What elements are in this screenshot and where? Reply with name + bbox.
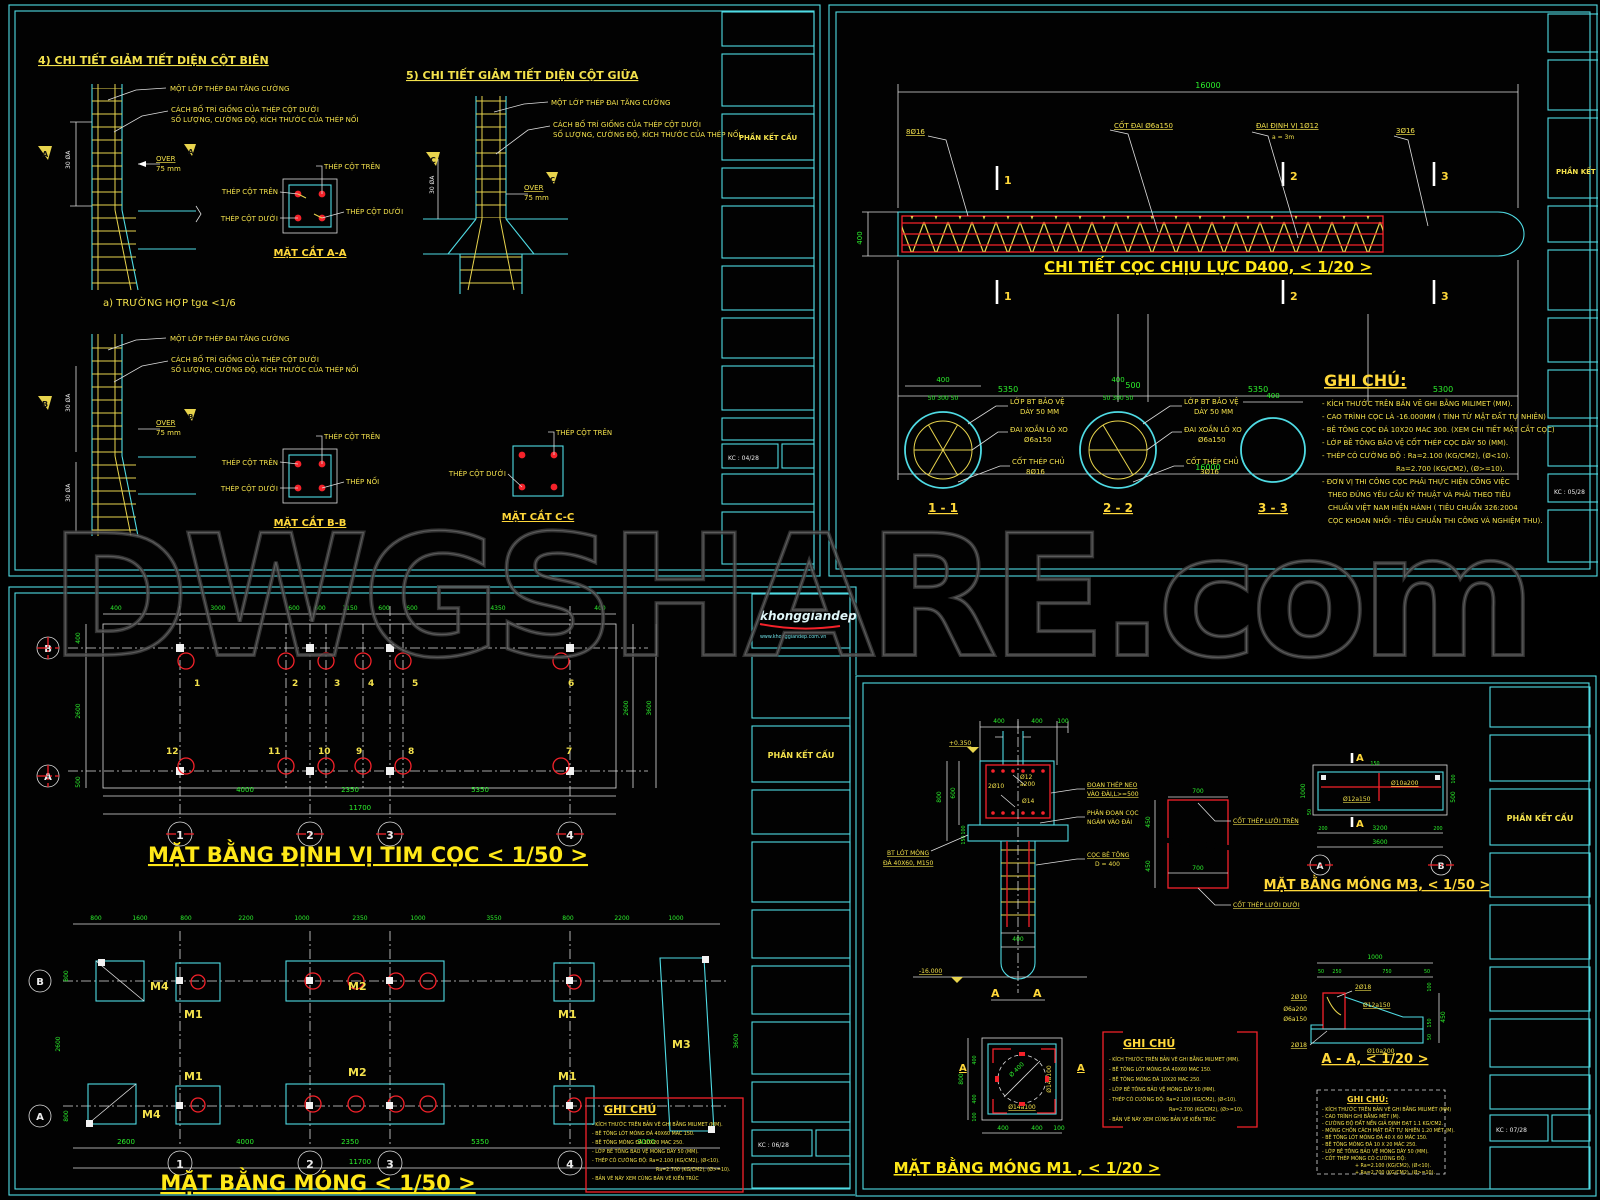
m3-1000: 1000 <box>1300 783 1307 798</box>
m3-axisA: A <box>1317 862 1324 872</box>
pile-no: 7 <box>566 747 572 757</box>
aa-2d10: 2Ø10 <box>1291 994 1307 1001</box>
p2-dimtop: 1000 <box>668 915 683 922</box>
m1s-markA-right: A <box>1033 987 1042 1000</box>
m3-d12a150: Ø12a150 <box>1343 796 1371 803</box>
sheet3-drawing: 400 3000 600 600 1150 600 600 4350 400 <box>8 586 858 1197</box>
p1-dimtop: 600 <box>406 605 418 612</box>
note-line: CỌC KHOAN NHỒI - TIÊU CHUẨN THI CÔNG VÀ … <box>1328 515 1542 525</box>
dim-5350a: 5350 <box>998 385 1018 394</box>
mark3-top: 3 <box>1441 170 1449 183</box>
pile-no: 9 <box>356 747 362 757</box>
aa-2d18b: 2Ø18 <box>1291 1042 1307 1049</box>
p1-dimtop: 3000 <box>210 605 225 612</box>
note-line: - ĐƠN VỊ THI CÔNG CỌC PHẢI THỰC HIỆN CÔN… <box>1322 477 1510 486</box>
p2-dimside-r: 3600 <box>733 1033 740 1048</box>
detail4-column: 30 ØA A OVER 75 mm A MỘT LỚP THÉP ĐAI TĂ… <box>38 84 358 290</box>
level-bottom: -16.000 <box>919 968 942 975</box>
sheet3-number: KC : 06/28 <box>758 1142 789 1149</box>
m1p-diml: 100 <box>972 1112 978 1121</box>
note-line: - KÍCH THƯỚC TRÊN BẢN VẼ GHI BẰNG MILIMÉ… <box>1322 1105 1451 1113</box>
footing-M2b: M2 <box>348 1066 367 1079</box>
over-label-c: OVER <box>524 184 544 192</box>
m1p-markA-l: A <box>959 1063 967 1074</box>
s22-dimsub: 50 300 50 <box>1103 395 1134 402</box>
sheet4-notes2: GHI CHÚ: - KÍCH THƯỚC TRÊN BẢN VẼ GHI BẰ… <box>1317 1090 1455 1176</box>
axis2-3: 3 <box>386 1158 394 1171</box>
aa-2d18t: 2Ø18 <box>1355 984 1371 991</box>
dim-30da-b2: 30 ØA <box>65 483 72 502</box>
label-thep-cot-tren: THÉP CỘT TRÊN <box>323 162 380 171</box>
label-mot-lop-b: MỘT LỚP THÉP ĐAI TĂNG CƯỜNG <box>170 334 289 343</box>
pile-no: 10 <box>318 747 331 757</box>
label-bb-noi: THÉP NỐI <box>345 476 379 486</box>
note-line: - BÊ TÔNG MÓNG ĐÁ 10X20 MAC 250. <box>1109 1075 1201 1083</box>
label-cach-bo-tri-b: CÁCH BỐ TRÍ GIỐNG CỦA THÉP CỘT DƯỚI <box>171 354 319 364</box>
note-line: + Ra=2.700 (KG/CM2), (Ø>=10). <box>1355 1169 1435 1176</box>
sheet1-number: KC : 04/28 <box>728 455 759 462</box>
m1p-800: 800 <box>958 1073 965 1085</box>
m3-100: 100 <box>1451 774 1457 783</box>
detail4-title: 4) CHI TIẾT GIẢM TIẾT DIỆN CỘT BIÊN <box>38 52 269 67</box>
s22-ct1: CỐT THÉP CHỦ <box>1186 456 1239 466</box>
over-label-b: OVER <box>156 419 176 427</box>
m3-axisB: B <box>1438 862 1445 872</box>
aa-dimr: 100 <box>1427 982 1433 991</box>
sheet4-notes1-heading: GHI CHÚ <box>1123 1037 1175 1050</box>
label-mot-lop: MỘT LỚP THÉP ĐAI TĂNG CƯỜNG <box>170 84 289 93</box>
dim-5350b: 5350 <box>1248 385 1268 394</box>
p2-dimtop: 3550 <box>486 915 501 922</box>
note-line: - THÉP CÓ CƯỜNG ĐỘ: Ra=2.100 (KG/CM2), (… <box>592 1156 720 1164</box>
axis-3: 3 <box>386 829 394 842</box>
section-marker-b2: B <box>188 413 193 421</box>
cad-canvas: 4) CHI TIẾT GIẢM TIẾT DIỆN CỘT BIÊN 30 Ø… <box>0 0 1600 1200</box>
pile-no: 5 <box>412 679 418 689</box>
label-8d16: 8Ø16 <box>906 128 925 136</box>
pile-positioning-plan: 400 3000 600 600 1150 600 600 4350 400 <box>37 605 656 867</box>
s11-dimsub: 50 300 50 <box>928 395 959 402</box>
label-cach-bo-tri: CÁCH BỐ TRÍ GIỐNG CỦA THÉP CỘT DƯỚI <box>171 104 319 114</box>
m1p-title: MẶT BẰNG MÓNG M1 , < 1/20 > <box>894 1156 1161 1177</box>
p1-dimleft: 500 <box>75 776 82 788</box>
pile-no: 3 <box>334 679 340 689</box>
s33-dim400: 400 <box>1266 392 1279 400</box>
note-line: - CỐT THÉP MÓNG CÓ CƯỜNG ĐỘ: <box>1322 1154 1406 1162</box>
pile-no: 8 <box>408 747 414 757</box>
label-mot-lop-5: MỘT LỚP THÉP ĐAI TĂNG CƯỜNG <box>551 98 670 107</box>
p1-dimtop: 600 <box>288 605 300 612</box>
l-a200: a200 <box>1020 781 1035 788</box>
sheet-foundation-plans: 400 3000 600 600 1150 600 600 4350 400 <box>8 586 858 1197</box>
mark1-top: 1 <box>1004 174 1012 187</box>
sheet2-notes: GHI CHÚ: - KÍCH THƯỚC TRÊN BẢN VẼ GHI BẰ… <box>1322 371 1555 525</box>
aa-dimr: 150 <box>1427 1018 1433 1027</box>
aa-sub: 750 <box>1382 969 1391 975</box>
dim-100: 100 <box>961 825 967 834</box>
sheet4-title-block: PHẦN KẾT CẤU KC : 07/28 <box>1490 687 1590 1189</box>
note-line: - LỚP BÊ TÔNG BẢO VỆ MÓNG DÀY 50 (MM). <box>1322 1147 1429 1155</box>
p2-dimbot: 2600 <box>117 1138 135 1146</box>
sheet2-drawing: 16000 400 1 1 2 2 3 3 8Ø16 CỐT ĐAI Ø6a15… <box>828 4 1598 578</box>
m3-markA-top: A <box>1356 753 1364 764</box>
m1s-dim: 100 <box>1057 718 1069 725</box>
s11-name: 1 - 1 <box>928 501 958 515</box>
label-a3m: a = 3m <box>1272 134 1294 141</box>
sheet3-discipline: PHẦN KẾT CẤU <box>768 748 835 760</box>
note-line: Ra=2.700 (KG/CM2), (Ø>=10). <box>656 1166 730 1173</box>
label-so-luong-5: SỐ LƯỢNG, CƯỜNG ĐỘ, KÍCH THƯỚC CỦA THÉP … <box>553 129 740 139</box>
pile-no: 2 <box>292 679 298 689</box>
p1-dimtop: 1150 <box>342 605 357 612</box>
label-3d16: 3Ø16 <box>1396 127 1415 135</box>
plan2-title: MẶT BẰNG MÓNG < 1/50 > <box>160 1167 475 1195</box>
label-thep-cot-tren2: THÉP CỘT TRÊN <box>221 187 278 196</box>
l-2d10: 2Ø10 <box>988 783 1004 790</box>
p2-dimtop: 800 <box>90 915 102 922</box>
dim-5300: 5300 <box>1433 385 1453 394</box>
s22-name: 2 - 2 <box>1103 501 1133 515</box>
note-line: - CƯỜNG ĐỘ ĐẤT NỀN GIẢ ĐỊNH ĐẠT 1.1 KG/C… <box>1322 1119 1443 1127</box>
s22-dx2: Ø6a150 <box>1198 436 1226 444</box>
m3-50: 50 <box>1307 809 1313 815</box>
m1p-diml: 400 <box>972 1055 978 1064</box>
p2-dimbot: 4000 <box>236 1138 254 1146</box>
gd-label-top: CỐT THÉP LƯỚI TRÊN <box>1233 817 1299 825</box>
sheet-column-details: 4) CHI TIẾT GIẢM TIẾT DIỆN CỘT BIÊN 30 Ø… <box>8 4 822 578</box>
pile-section-3: 400 3 - 3 <box>1241 392 1305 515</box>
label-cc-tren: THÉP CỘT TRÊN <box>555 428 612 437</box>
aa-section: 1000 50 250 750 50 2Ø18 2Ø10 Ø6a200 Ø6a1… <box>1283 954 1447 1067</box>
axis2-2: 2 <box>306 1158 314 1171</box>
m1p-dimb: 400 <box>1031 1125 1043 1132</box>
over-mm-b: 75 mm <box>156 429 181 437</box>
m3-title: MẶT BẰNG MÓNG M3, < 1/50 > <box>1264 876 1491 893</box>
sheet4-drawing: 400 400 100 +0.350 Ø12 a200 2Ø10 Ø14 400 <box>855 675 1597 1197</box>
m1p-markA-r: A <box>1077 1063 1085 1074</box>
sheet2-number: KC : 05/28 <box>1554 489 1585 496</box>
p1-dimtop: 4350 <box>490 605 505 612</box>
pile-no: 1 <box>194 679 200 689</box>
note-line: - BÊ TÔNG CỌC ĐÁ 10X20 MAC 300. (XEM CHI… <box>1322 424 1555 434</box>
p2-dimtop: 800 <box>180 915 192 922</box>
p1-dimtop: 600 <box>378 605 390 612</box>
p2-dimtop: 1000 <box>410 915 425 922</box>
l-phan2: NGÀM VÀO ĐÀI <box>1087 819 1132 826</box>
level-top: +0.350 <box>949 740 971 747</box>
note-line: - LỚP BÊ TÔNG BẢO VỆ MÓNG DÀY 50 (MM). <box>1109 1085 1216 1093</box>
gd-700top: 700 <box>1192 788 1204 795</box>
note-line: - CAO TRÌNH CỌC LÀ -16.000MM ( TÍNH TỪ M… <box>1322 411 1546 421</box>
l-phan1: PHÂN ĐOẠN CỌC <box>1087 810 1139 817</box>
l-coc1: CỌC BÊ TÔNG <box>1087 851 1130 859</box>
axis-1: 1 <box>176 829 184 842</box>
mark2-top: 2 <box>1290 170 1298 183</box>
footing-M4: M4 <box>150 980 169 993</box>
label-thep-cot-duoi: THÉP CỘT DƯỚI <box>220 214 278 223</box>
section-marker-c2: C <box>550 176 555 184</box>
l-d12: Ø12 <box>1020 774 1033 781</box>
footing-M3: M3 <box>672 1038 691 1051</box>
dim-500: 500 <box>1125 381 1140 390</box>
l-neo2: VÀO ĐÀI,L>=500 <box>1087 791 1139 798</box>
p2-dimside: 800 <box>63 1110 70 1122</box>
note-line: - MÓNG CHÔN CÁCH MẶT ĐẤT TỰ NHIÊN 1.20 M… <box>1322 1126 1455 1134</box>
footing-M1: M1 <box>184 1008 203 1021</box>
axis2-1: 1 <box>176 1158 184 1171</box>
m1p-diml: 400 <box>972 1094 978 1103</box>
label-so-luong-b: SỐ LƯỢNG, CƯỜNG ĐỘ, KÍCH THƯỚC CỦA THÉP … <box>171 364 358 374</box>
m3-500: 500 <box>1450 791 1457 803</box>
sheet4-notes1: GHI CHÚ - KÍCH THƯỚC TRÊN BẢN VẼ GHI BẰN… <box>1103 1032 1257 1127</box>
s11-ct1: CỐT THÉP CHỦ <box>1012 456 1065 466</box>
sheet2-notes-heading: GHI CHÚ: <box>1324 371 1407 390</box>
pile-no: 4 <box>368 679 374 689</box>
axis2-B: B <box>36 977 44 988</box>
s11-bv1: LỚP BT BẢO VỆ <box>1010 397 1065 406</box>
label-so-luong: SỐ LƯỢNG, CƯỜNG ĐỘ, KÍCH THƯỚC CỦA THÉP … <box>171 114 358 124</box>
note-line: - THÉP CÓ CƯỜNG ĐỘ: Ra=2.100 (KG/CM2), (… <box>1109 1095 1237 1103</box>
dim-800: 800 <box>936 791 943 803</box>
footing-M1d: M1 <box>558 1070 577 1083</box>
l-neo1: ĐOẠN THÉP NEO <box>1087 781 1138 789</box>
note-line: + Ra=2.100 (KG/CM2), (Ø<10). <box>1355 1162 1431 1169</box>
note-line: - CAO TRÌNH GHI BẰNG MÉT (M). <box>1322 1112 1400 1120</box>
aa-d6a150: Ø6a150 <box>1283 1016 1307 1023</box>
sheet1-discipline: PHẦN KẾT CẤU <box>739 132 798 142</box>
aa-d12a150: Ø12a150 <box>1363 1002 1391 1009</box>
sheet3-notes-heading: GHI CHÚ <box>604 1103 656 1116</box>
dim-400-left: 400 <box>856 231 864 244</box>
s22-dx1: ĐAI XOẮN LÒ XO <box>1184 424 1242 434</box>
sheet-pile-detail: 16000 400 1 1 2 2 3 3 8Ø16 CỐT ĐAI Ø6a15… <box>828 4 1598 578</box>
s22-ct2: 3Ø16 <box>1200 468 1219 476</box>
sheet4-discipline: PHẦN KẾT CẤU <box>1507 811 1574 823</box>
over-label: OVER <box>156 155 176 163</box>
note-line: - KÍCH THƯỚC TRÊN BẢN VẼ GHI BẰNG MILIME… <box>592 1120 723 1128</box>
axis2-A: A <box>36 1112 44 1123</box>
section-marker-a: A <box>42 150 49 159</box>
note-line: Ra=2.700 (KG/CM2), (Ø>=10). <box>1396 465 1505 473</box>
section-aa: THÉP CỘT TRÊN THÉP CỘT TRÊN THÉP CỘT DƯỚ… <box>220 162 403 259</box>
p1-dimbot: 4000 <box>236 786 254 794</box>
m1s-markA-left: A <box>991 987 1000 1000</box>
note-line: Ra=2.700 (KG/CM2), (Ø>=10). <box>1169 1106 1243 1113</box>
p2-dimtop: 2350 <box>352 915 367 922</box>
section-bb: THÉP CỘT TRÊN THÉP CỘT TRÊN THÉP CỘT DƯỚ… <box>220 432 380 529</box>
sheet1-drawing: 4) CHI TIẾT GIẢM TIẾT DIỆN CỘT BIÊN 30 Ø… <box>8 4 822 578</box>
m3-150: 150 <box>1370 761 1379 767</box>
m1p-d400: Ø 400 <box>1008 1061 1026 1079</box>
note-line: - BÊ TÔNG LÓT MÓNG ĐÁ 40X60 MAC 150. <box>1109 1065 1211 1073</box>
m3-dimb: 3200 <box>1372 825 1387 832</box>
gd-label-bottom: CỐT THÉP LƯỚI DƯỚI <box>1233 901 1300 909</box>
s11-dx2: Ø6a150 <box>1024 436 1052 444</box>
note-line: - BẢN VẼ NÀY XEM CÙNG BẢN VẼ KIẾN TRÚC <box>1109 1115 1216 1123</box>
aa-dimr: 50 <box>1427 1034 1433 1040</box>
note-line: - BÊ TÔNG LÓT MÓNG ĐÁ 40X60 MAC 150. <box>592 1129 694 1137</box>
m1p-dimb: 100 <box>1053 1125 1065 1132</box>
note-line: - LỚP BÊ TÔNG BẢO VỆ CỐT THÉP CỌC DÀY 50… <box>1322 437 1508 447</box>
pile-section-2: 400 50 300 50 LỚP BT BẢO VỆ DÀY 50 MM ĐA… <box>1080 376 1242 515</box>
label-cot-dai: CỐT ĐAI Ø6a150 <box>1114 120 1173 130</box>
note-line: - KÍCH THƯỚC TRÊN BẢN VẼ GHI BẰNG MILIME… <box>1109 1055 1240 1063</box>
gd-450b: 450 <box>1145 860 1152 872</box>
pile-no: 6 <box>568 679 574 689</box>
label-bb-duoi: THÉP CỘT DƯỚI <box>220 484 278 493</box>
s22-bv1: LỚP BT BẢO VỆ <box>1184 397 1239 406</box>
note-line: - BÊ TÔNG MÓNG ĐÁ 10 X 20 MÁC 250. <box>1322 1140 1417 1148</box>
dim-16000-top: 16000 <box>1195 81 1220 90</box>
detailB-column: 30 ØA 30 ØA B OVER 75 mm B MỘT LỚP THÉP … <box>38 334 358 536</box>
aa-sub: 250 <box>1332 969 1341 975</box>
l-lot1: BT LÓT MÓNG <box>887 850 930 857</box>
s11-dim400: 400 <box>936 376 949 384</box>
p2-dimbot: 2350 <box>341 1138 359 1146</box>
footing-M1b: M1 <box>184 1070 203 1083</box>
sheet4-number: KC : 07/28 <box>1496 1127 1527 1134</box>
p1-dimtop: 400 <box>594 605 606 612</box>
dim-pile-400: 400 <box>1012 936 1024 943</box>
sheet1-title-block: PHẦN KẾT CẤU KC : 04/28 <box>722 12 814 564</box>
footing-M2: M2 <box>348 980 367 993</box>
sheet3-notes: GHI CHÚ - KÍCH THƯỚC TRÊN BẢN VẼ GHI BẰN… <box>586 1098 743 1192</box>
mark2-bot: 2 <box>1290 290 1298 303</box>
p2-dimtop: 2200 <box>614 915 629 922</box>
p1-dimtop: 600 <box>314 605 326 612</box>
sheet4-notes2-heading: GHI CHÚ: <box>1347 1093 1388 1104</box>
dim-30da: 30 ØA <box>65 150 72 169</box>
footing-M4b: M4 <box>142 1108 161 1121</box>
caption-bb: MẶT CẮT B-B <box>274 514 347 529</box>
logo-url: www.khonggiandep.com.vn <box>760 634 826 640</box>
p1-dimtop: 400 <box>110 605 122 612</box>
gd-700mid: 700 <box>1192 865 1204 872</box>
axis-2: 2 <box>306 829 314 842</box>
p1-dimleft: 400 <box>75 632 82 644</box>
logo-swoosh <box>760 624 840 629</box>
axis-4: 4 <box>566 829 574 842</box>
logo-text: khonggiandep <box>760 609 857 623</box>
aa-sub: 50 <box>1424 969 1430 975</box>
aa-title: A - A, < 1/20 > <box>1322 1052 1429 1067</box>
p1-dimright: 2600 <box>623 700 630 715</box>
p1-dimbot: 5350 <box>471 786 489 794</box>
mark3-bot: 3 <box>1441 290 1449 303</box>
l-lot2: ĐÁ 40X60, M150 <box>883 860 934 867</box>
s22-dim400: 400 <box>1111 376 1124 384</box>
note-line: CHUẨN VIỆT NAM HIỆN HÀNH ( TIÊU CHUẨN 32… <box>1328 502 1518 512</box>
note-line: - KÍCH THƯỚC TRÊN BẢN VẼ GHI BẰNG MILIME… <box>1322 398 1513 408</box>
caption-cc: MẶT CẮT C-C <box>502 508 574 523</box>
over-mm: 75 mm <box>156 165 181 173</box>
m3-3600: 3600 <box>1372 839 1387 846</box>
plan1-title: MẶT BẰNG ĐỊNH VỊ TIM CỌC < 1/50 > <box>148 839 588 867</box>
label-bb-tren: THÉP CỘT TRÊN <box>221 458 278 467</box>
pile-no: 12 <box>166 747 179 757</box>
mark1-bot: 1 <box>1004 290 1012 303</box>
aa-1000: 1000 <box>1367 954 1382 961</box>
sheet2-title: CHI TIẾT CỌC CHỊU LỰC D400, < 1/20 > <box>1044 255 1372 276</box>
p1-dimtotal: 11700 <box>349 804 371 812</box>
note-line: THEO ĐÚNG YÊU CẦU KỸ THUẬT VÀ PHẢI THEO … <box>1327 489 1511 499</box>
aa-d6a200: Ø6a200 <box>1283 1006 1307 1013</box>
p2-dimtop: 1000 <box>294 915 309 922</box>
p2-dimside: 800 <box>63 970 70 982</box>
note-line: - THÉP CÓ CƯỜNG ĐỘ : Ra=2.100 (KG/CM2), … <box>1322 451 1510 460</box>
s11-bv2: DÀY 50 MM <box>1020 407 1059 416</box>
caption-aa: MẶT CẮT A-A <box>273 244 346 259</box>
m1p-dimb: 400 <box>997 1125 1009 1132</box>
aa-450: 450 <box>1440 1011 1447 1023</box>
detail5-title: 5) CHI TIẾT GIẢM TIẾT DIỆN CỘT GIỮA <box>406 67 639 82</box>
note-line: - BẢN VẼ NÀY XEM CÙNG BẢN VẼ KIẾN TRÚC <box>592 1174 699 1182</box>
aa-sub: 50 <box>1318 969 1324 975</box>
over-mm-c: 75 mm <box>524 194 549 202</box>
p2-dimtop: 1600 <box>132 915 147 922</box>
gd-450a: 450 <box>1145 816 1152 828</box>
label-cach-bo-tri-5: CÁCH BỐ TRÍ GIỐNG CỦA THÉP CỘT DƯỚI <box>553 119 701 129</box>
note-line: - BÊ TÔNG LÓT MÓNG ĐÁ 40 X 60 MÁC 150. <box>1322 1133 1428 1141</box>
label-cc-duoi: THÉP CỘT DƯỚI <box>448 469 506 478</box>
label-thep-cot-duoi2: THÉP CỘT DƯỚI <box>345 207 403 216</box>
m3-dimb: 200 <box>1433 826 1442 832</box>
m3-markA-bot: A <box>1356 819 1364 830</box>
m3-dimb: 200 <box>1318 826 1327 832</box>
l-coc2: D = 400 <box>1095 861 1120 868</box>
s11-dx1: ĐAI XOẮN LÒ XO <box>1010 424 1068 434</box>
p1-dimleft: 2600 <box>75 703 82 718</box>
label-dai-dinh-vi: ĐAI ĐỊNH VỊ 1Ø12 <box>1256 122 1319 130</box>
p2-dimtop: 2200 <box>238 915 253 922</box>
case-a-label: a) TRƯỜNG HỢP tgα <1/6 <box>103 296 236 309</box>
m1s-dim: 400 <box>993 718 1005 725</box>
l-d14: Ø14 <box>1022 798 1035 805</box>
footing-M1c: M1 <box>558 1008 577 1021</box>
p1-dimbot: 2350 <box>341 786 359 794</box>
sheet-footing-details: 400 400 100 +0.350 Ø12 a200 2Ø10 Ø14 400 <box>855 675 1597 1197</box>
p2-dimtotal: 11700 <box>349 1158 371 1166</box>
p2-dimside: 2600 <box>55 1036 62 1051</box>
pile-section-1: 400 50 300 50 LỚP BT BẢO VỆ DÀY 50 MM ĐA… <box>905 376 1068 515</box>
sheet2-discipline: PHẦN KẾT CẤU <box>1556 166 1598 176</box>
m1s-dim: 400 <box>1031 718 1043 725</box>
section-cc: THÉP CỘT TRÊN THÉP CỘT DƯỚI MẶT CẮT C-C <box>448 428 612 523</box>
s22-bv2: DÀY 50 MM <box>1194 407 1233 416</box>
s33-name: 3 - 3 <box>1258 501 1288 515</box>
m1-footing-section: 400 400 100 +0.350 Ø12 a200 2Ø10 Ø14 400 <box>883 718 1139 1000</box>
p2-dimbot: 5350 <box>471 1138 489 1146</box>
dim-600: 600 <box>950 787 957 799</box>
s11-ct2: 8Ø16 <box>1026 468 1045 476</box>
sheet3-title-block: khonggiandep www.khonggiandep.com.vn PHẦ… <box>752 594 857 1188</box>
p2-dimtop: 800 <box>562 915 574 922</box>
detail5-column: C 30 ØA OVER 75 mm C MỘT LỚP THÉP ĐAI TĂ… <box>423 96 740 294</box>
pile-no: 11 <box>268 747 281 757</box>
section-marker-b: B <box>42 400 48 409</box>
dim-30da-b1: 30 ØA <box>65 393 72 412</box>
dim-30da-c: 30 ØA <box>429 175 436 194</box>
axis2-4: 4 <box>566 1158 574 1171</box>
section-marker-a2: A <box>188 148 194 156</box>
m3-d10a200: Ø10a200 <box>1391 780 1419 787</box>
label-bb-tren-top: THÉP CỘT TRÊN <box>323 432 380 441</box>
p1-dimright: 3600 <box>646 700 653 715</box>
section-marker-c: C <box>430 156 436 165</box>
